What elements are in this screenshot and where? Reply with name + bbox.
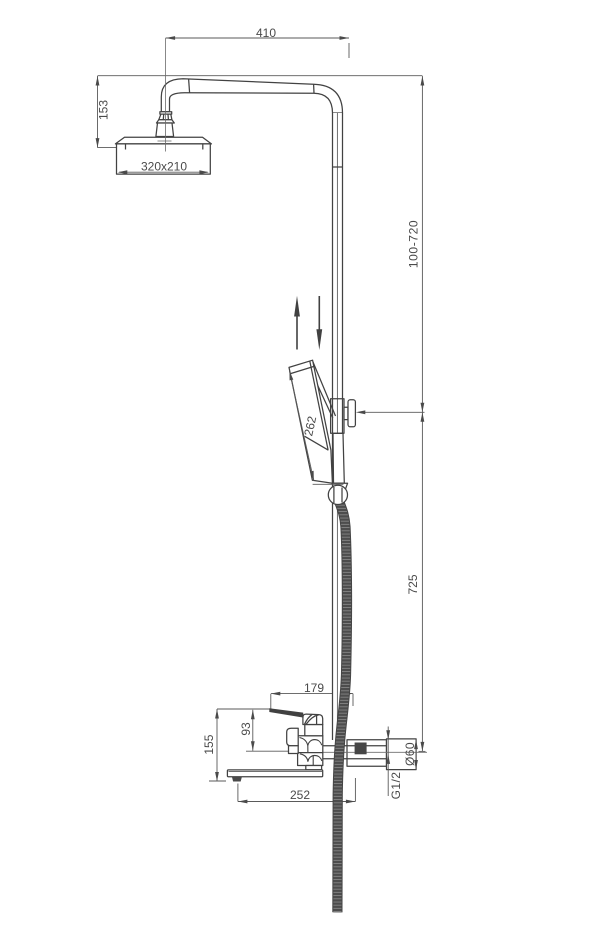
svg-text:252: 252 <box>290 788 310 802</box>
svg-text:100-720: 100-720 <box>406 220 420 268</box>
svg-text:410: 410 <box>256 26 276 40</box>
svg-text:153: 153 <box>97 100 111 120</box>
svg-text:179: 179 <box>304 681 324 695</box>
svg-text:725: 725 <box>406 574 420 594</box>
svg-text:320x210: 320x210 <box>141 160 187 174</box>
svg-text:Ø60: Ø60 <box>403 742 417 766</box>
svg-text:G1/2: G1/2 <box>389 772 403 800</box>
svg-text:155: 155 <box>202 734 216 754</box>
svg-text:93: 93 <box>239 722 253 736</box>
